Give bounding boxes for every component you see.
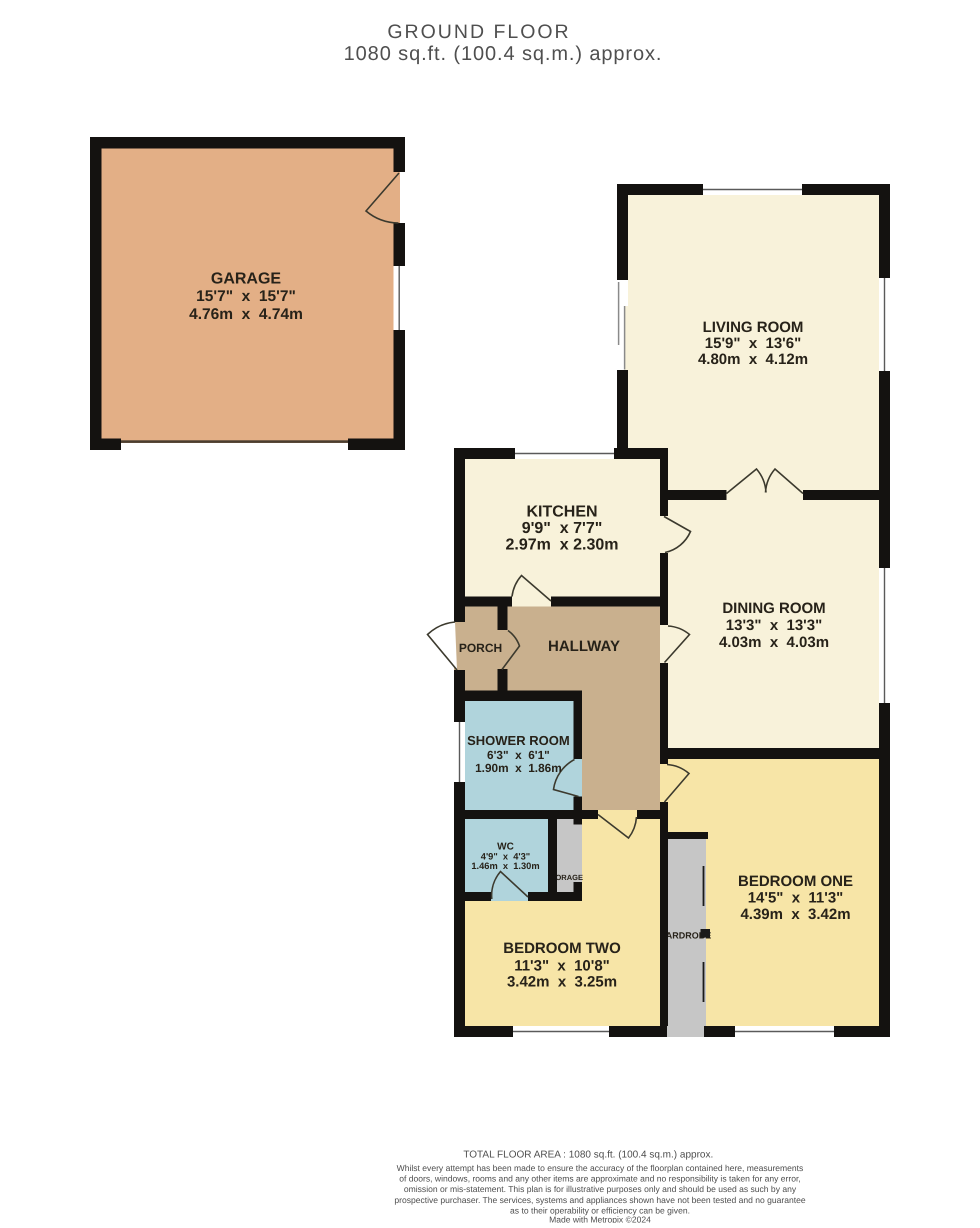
svg-text:4'9" x 4'3": 4'9" x 4'3" bbox=[481, 852, 530, 862]
svg-text:SHOWER ROOM: SHOWER ROOM bbox=[467, 733, 570, 748]
svg-text:4.76m x 4.74m: 4.76m x 4.74m bbox=[189, 306, 303, 323]
svg-text:4.80m x 4.12m: 4.80m x 4.12m bbox=[698, 351, 808, 368]
svg-text:1080 sq.ft. (100.4 sq.m.) appr: 1080 sq.ft. (100.4 sq.m.) approx. bbox=[344, 43, 663, 65]
svg-text:PORCH: PORCH bbox=[459, 641, 502, 655]
svg-text:GROUND FLOOR: GROUND FLOOR bbox=[387, 21, 570, 43]
svg-text:omission or mis-statement. Thi: omission or mis-statement. This plan is … bbox=[404, 1184, 797, 1194]
svg-text:HALLWAY: HALLWAY bbox=[548, 638, 620, 655]
svg-text:6'3" x 6'1": 6'3" x 6'1" bbox=[487, 748, 550, 762]
svg-text:15'9" x 13'6": 15'9" x 13'6" bbox=[705, 335, 801, 352]
svg-text:BEDROOM TWO: BEDROOM TWO bbox=[503, 940, 621, 957]
svg-text:DINING ROOM: DINING ROOM bbox=[722, 600, 825, 617]
svg-text:15'7" x 15'7": 15'7" x 15'7" bbox=[196, 288, 296, 305]
svg-text:1.46m x 1.30m: 1.46m x 1.30m bbox=[471, 861, 539, 871]
svg-text:3.42m x 3.25m: 3.42m x 3.25m bbox=[507, 974, 617, 991]
svg-text:13'3" x 13'3": 13'3" x 13'3" bbox=[726, 617, 822, 634]
svg-text:LIVING ROOM: LIVING ROOM bbox=[703, 319, 804, 336]
svg-text:BEDROOM ONE: BEDROOM ONE bbox=[738, 873, 853, 890]
svg-text:1.90m x 1.86m: 1.90m x 1.86m bbox=[475, 761, 562, 775]
svg-text:14'5" x 11'3": 14'5" x 11'3" bbox=[748, 890, 844, 907]
svg-text:Made with Metropix ©2024: Made with Metropix ©2024 bbox=[549, 1214, 651, 1223]
svg-text:of doors, windows, rooms and a: of doors, windows, rooms and any other i… bbox=[399, 1174, 800, 1184]
svg-text:2.97m x 2.30m: 2.97m x 2.30m bbox=[506, 537, 619, 554]
svg-text:4.39m x 3.42m: 4.39m x 3.42m bbox=[740, 906, 850, 923]
svg-text:9'9" x 7'7": 9'9" x 7'7" bbox=[522, 520, 603, 537]
svg-text:TOTAL FLOOR AREA : 1080 sq.ft.: TOTAL FLOOR AREA : 1080 sq.ft. (100.4 sq… bbox=[463, 1150, 713, 1161]
svg-text:prospective purchaser. The ser: prospective purchaser. The services, sys… bbox=[394, 1195, 806, 1205]
svg-text:KITCHEN: KITCHEN bbox=[526, 504, 597, 521]
svg-text:Whilst every attempt has been: Whilst every attempt has been made to en… bbox=[397, 1163, 804, 1173]
svg-text:11'3" x 10'8": 11'3" x 10'8" bbox=[514, 958, 610, 975]
svg-text:GARAGE: GARAGE bbox=[211, 271, 282, 288]
svg-text:4.03m x 4.03m: 4.03m x 4.03m bbox=[719, 634, 829, 651]
